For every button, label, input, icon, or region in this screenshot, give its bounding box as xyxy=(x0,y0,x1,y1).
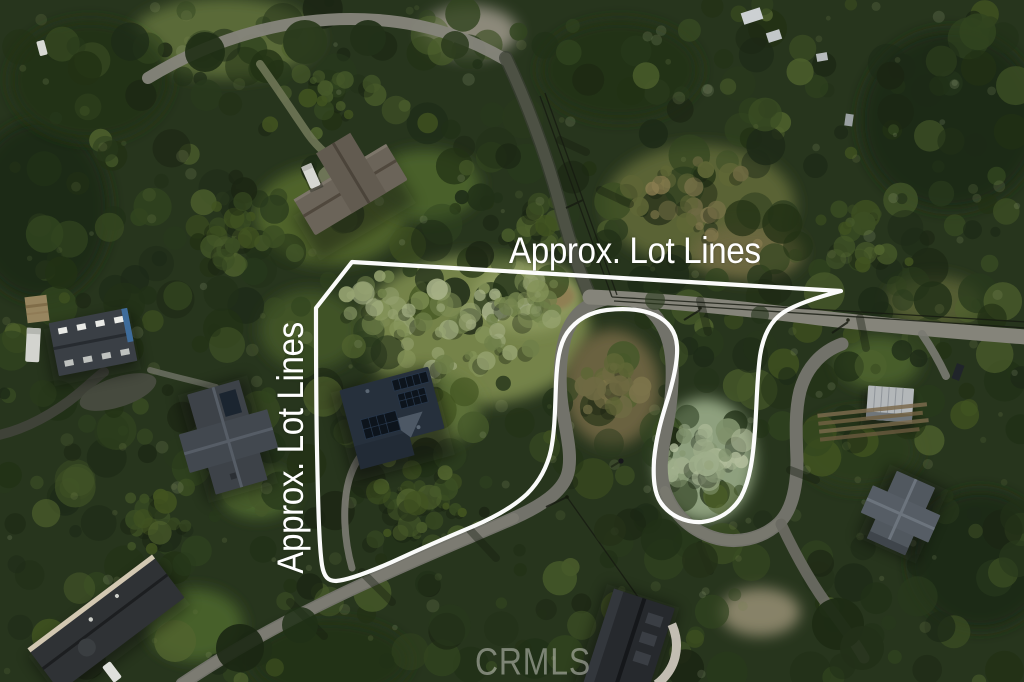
rv-trailer-left xyxy=(25,328,41,363)
aerial-scene xyxy=(0,0,1024,682)
lot-lines-label-top: Approx. Lot Lines xyxy=(509,230,761,272)
aerial-photo: Approx. Lot Lines Approx. Lot Lines CRML… xyxy=(0,0,1024,682)
shed xyxy=(24,295,49,323)
crmls-watermark: CRMLS xyxy=(475,642,591,682)
lot-lines-label-left: Approx. Lot Lines xyxy=(270,322,312,574)
